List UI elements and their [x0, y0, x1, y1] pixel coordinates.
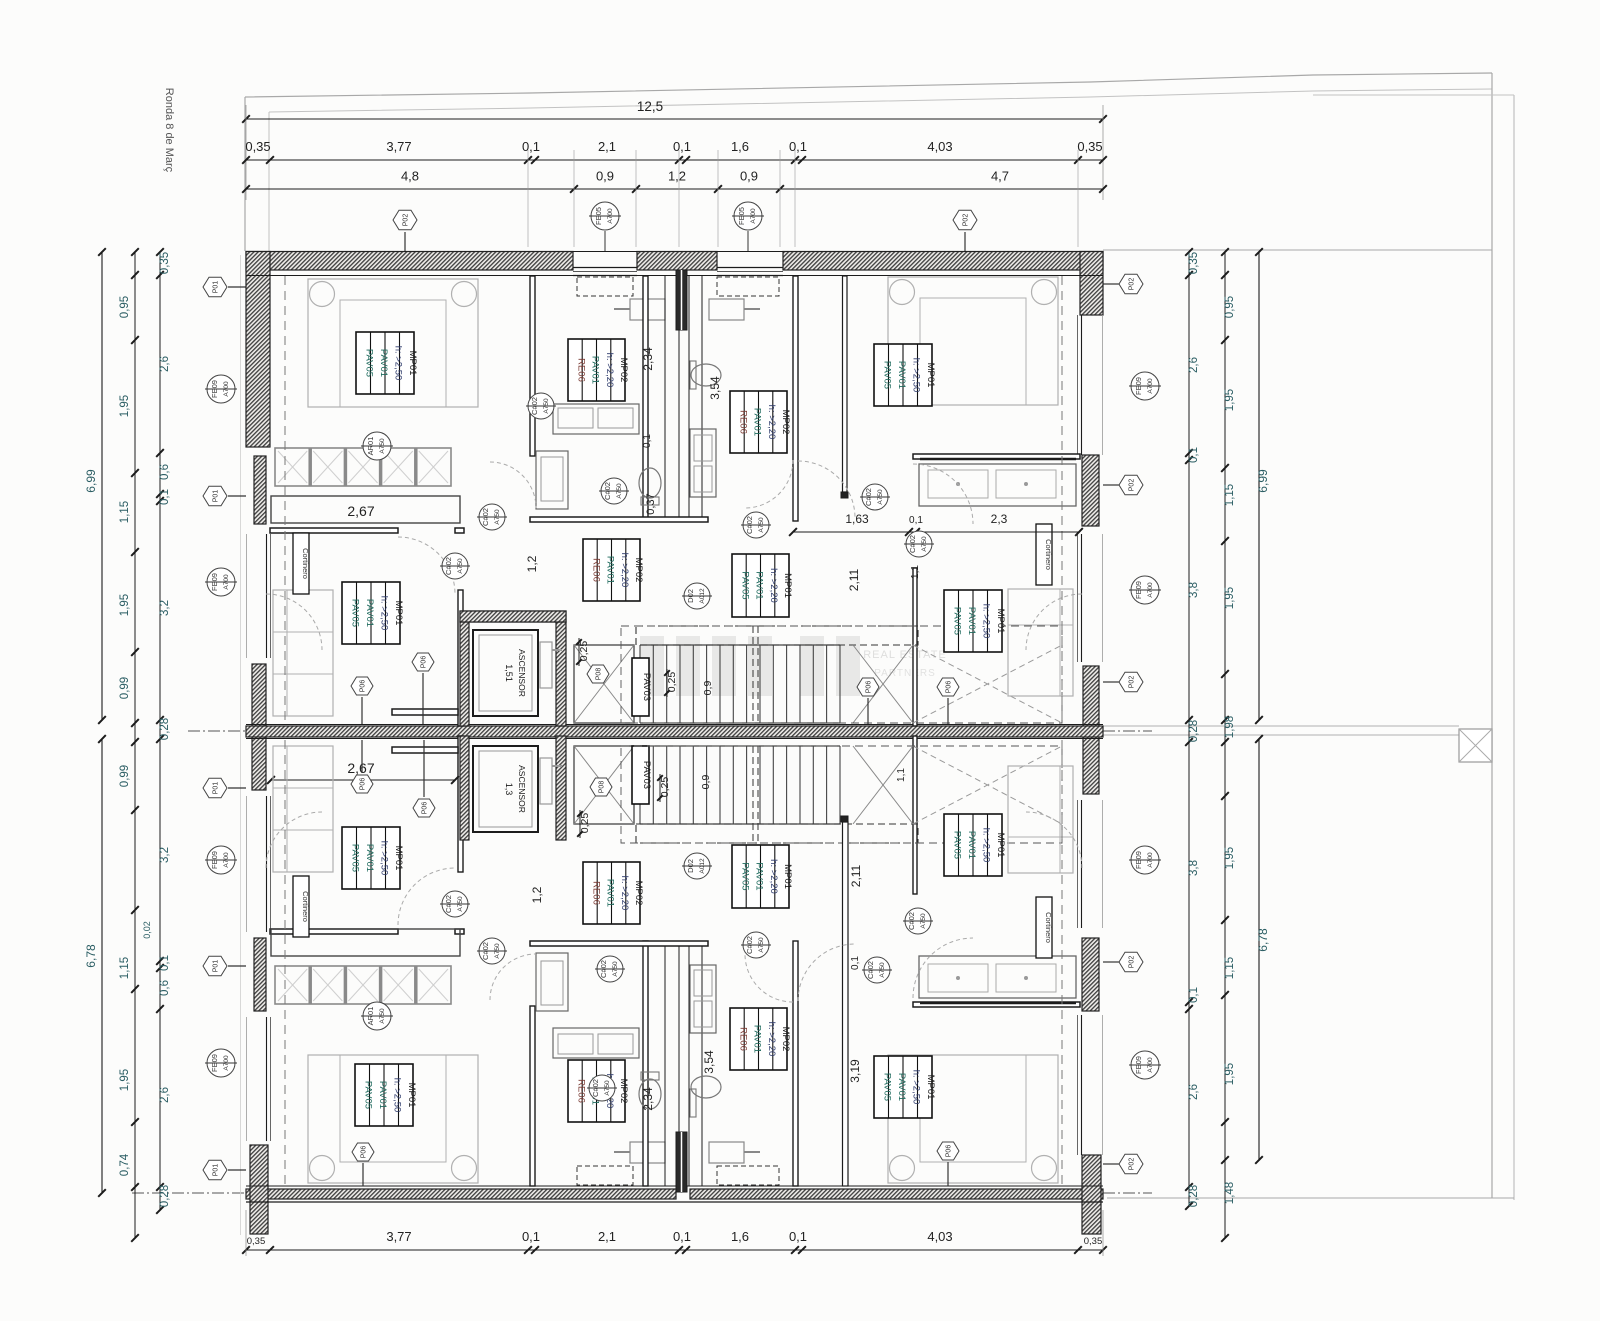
svg-text:MP01: MP01 — [782, 864, 793, 889]
svg-text:h: >2,50: h: >2,50 — [980, 828, 991, 863]
svg-text:P08: P08 — [599, 781, 606, 794]
svg-text:FE09: FE09 — [210, 851, 219, 869]
svg-text:PAV05: PAV05 — [362, 1081, 373, 1109]
svg-text:0,1: 0,1 — [522, 1229, 540, 1244]
svg-text:A700: A700 — [1147, 582, 1154, 598]
svg-text:PAV01: PAV01 — [896, 1073, 907, 1101]
svg-text:P02: P02 — [1129, 676, 1136, 689]
svg-text:MP02: MP02 — [633, 558, 644, 583]
svg-text:PAV05: PAV05 — [349, 844, 360, 872]
svg-text:A700: A700 — [1147, 852, 1154, 868]
svg-text:P02: P02 — [1129, 479, 1136, 492]
svg-text:3,54: 3,54 — [702, 1050, 716, 1074]
svg-text:2,11: 2,11 — [849, 864, 863, 887]
svg-text:0,95: 0,95 — [1224, 296, 1236, 318]
svg-text:A750: A750 — [494, 509, 501, 525]
svg-text:A750: A750 — [494, 943, 501, 959]
svg-text:FE09: FE09 — [210, 380, 219, 398]
svg-text:C#02: C#02 — [444, 557, 453, 575]
svg-text:P01: P01 — [213, 1164, 220, 1177]
svg-text:0,25: 0,25 — [578, 641, 590, 662]
svg-text:D02: D02 — [686, 589, 695, 603]
svg-text:P02: P02 — [1129, 1158, 1136, 1171]
svg-text:0,35: 0,35 — [1084, 1236, 1103, 1247]
svg-text:h: >2,20: h: >2,20 — [766, 405, 777, 440]
svg-text:2,6: 2,6 — [1188, 357, 1200, 373]
svg-text:PAV01: PAV01 — [754, 862, 765, 890]
svg-text:0,1: 0,1 — [673, 139, 691, 154]
svg-text:PARTNERS: PARTNERS — [874, 668, 936, 679]
svg-text:0,9: 0,9 — [596, 169, 614, 184]
svg-text:6,99: 6,99 — [1256, 469, 1270, 493]
svg-text:P02: P02 — [1129, 956, 1136, 969]
svg-text:0,35: 0,35 — [1188, 252, 1200, 274]
svg-text:C#02: C#02 — [530, 397, 539, 415]
svg-text:MP01: MP01 — [406, 1083, 417, 1108]
svg-text:AR01: AR01 — [366, 1007, 375, 1026]
svg-text:C#02: C#02 — [745, 936, 754, 954]
svg-text:P01: P01 — [213, 490, 220, 503]
svg-text:P06: P06 — [361, 1146, 368, 1159]
svg-text:P06: P06 — [360, 680, 367, 693]
svg-text:h: >2,20: h: >2,20 — [768, 568, 779, 603]
svg-text:ASCENSOR: ASCENSOR — [517, 649, 527, 697]
svg-text:3,2: 3,2 — [159, 847, 171, 863]
svg-text:h: >2,20: h: >2,20 — [766, 1022, 777, 1057]
svg-text:0,28: 0,28 — [159, 1185, 171, 1207]
svg-text:A750: A750 — [921, 536, 928, 552]
svg-text:PAV01: PAV01 — [377, 1081, 388, 1109]
svg-text:PAV01: PAV01 — [605, 879, 616, 907]
svg-text:0,1: 0,1 — [673, 1229, 691, 1244]
svg-text:1,2: 1,2 — [668, 169, 686, 184]
svg-text:A750: A750 — [616, 483, 623, 499]
svg-text:A750: A750 — [604, 1080, 611, 1096]
svg-text:3,19: 3,19 — [848, 1059, 862, 1083]
svg-text:0,1: 0,1 — [1188, 447, 1200, 463]
svg-text:0,37: 0,37 — [645, 493, 657, 514]
svg-text:3,77: 3,77 — [386, 139, 411, 154]
svg-text:A750: A750 — [758, 937, 765, 953]
svg-text:0,25: 0,25 — [579, 813, 591, 834]
svg-text:RE06: RE06 — [737, 1027, 748, 1051]
svg-text:PAV05: PAV05 — [349, 599, 360, 627]
svg-text:Cortinero: Cortinero — [1044, 912, 1053, 943]
svg-text:0,28: 0,28 — [1188, 720, 1200, 742]
svg-text:0,28: 0,28 — [1188, 1185, 1200, 1207]
svg-text:4,7: 4,7 — [991, 169, 1009, 184]
svg-text:2,1: 2,1 — [598, 139, 616, 154]
svg-text:C#02: C#02 — [444, 895, 453, 913]
svg-text:C#02: C#02 — [603, 482, 612, 500]
svg-text:MP02: MP02 — [633, 881, 644, 906]
svg-text:1,2: 1,2 — [530, 886, 544, 903]
svg-text:0,6: 0,6 — [159, 980, 171, 996]
svg-text:0,35: 0,35 — [1077, 139, 1102, 154]
svg-text:3,77: 3,77 — [386, 1229, 411, 1244]
svg-text:0,99: 0,99 — [119, 765, 131, 787]
svg-text:0,9: 0,9 — [700, 775, 712, 790]
svg-text:1,2: 1,2 — [525, 555, 539, 572]
svg-text:FE09: FE09 — [1134, 581, 1143, 599]
svg-text:h: >2,50: h: >2,50 — [910, 358, 921, 393]
svg-text:C#02: C#02 — [908, 535, 917, 553]
svg-text:FE09: FE09 — [210, 1054, 219, 1072]
svg-text:PAV01: PAV01 — [364, 844, 375, 872]
svg-text:P06: P06 — [946, 1145, 953, 1158]
svg-text:0,9: 0,9 — [740, 169, 758, 184]
svg-text:Cortinero: Cortinero — [301, 548, 310, 579]
svg-text:P01: P01 — [213, 782, 220, 795]
svg-text:PAV01: PAV01 — [752, 1025, 763, 1053]
svg-text:PAV05: PAV05 — [951, 831, 962, 859]
svg-text:h: >2,20: h: >2,20 — [619, 876, 630, 911]
svg-text:P02: P02 — [1129, 278, 1136, 291]
svg-text:4,03: 4,03 — [927, 139, 952, 154]
svg-text:PAV05: PAV05 — [739, 571, 750, 599]
svg-text:MP01: MP01 — [925, 1075, 936, 1100]
svg-text:MP02: MP02 — [618, 358, 629, 383]
svg-text:3,54: 3,54 — [708, 376, 722, 400]
svg-text:2,1: 2,1 — [598, 1229, 616, 1244]
svg-text:C#02: C#02 — [907, 912, 916, 930]
svg-text:0,1: 0,1 — [159, 955, 171, 971]
svg-text:AR01: AR01 — [366, 437, 375, 456]
svg-text:h: >2,50: h: >2,50 — [392, 346, 403, 381]
svg-text:P06: P06 — [866, 681, 873, 694]
svg-text:2,6: 2,6 — [159, 1087, 171, 1103]
svg-text:P01: P01 — [213, 960, 220, 973]
svg-text:2,3: 2,3 — [991, 512, 1008, 526]
svg-text:6,78: 6,78 — [84, 944, 98, 968]
svg-text:1,51: 1,51 — [504, 664, 514, 682]
svg-text:A750: A750 — [877, 489, 884, 505]
svg-text:C#02: C#02 — [864, 488, 873, 506]
svg-text:PAV01: PAV01 — [590, 356, 601, 384]
svg-text:2,11: 2,11 — [847, 568, 861, 591]
svg-text:PAV01: PAV01 — [364, 599, 375, 627]
svg-text:Ronda 8 de Març: Ronda 8 de Març — [163, 88, 175, 173]
svg-text:1,3: 1,3 — [504, 783, 514, 796]
svg-text:0,35: 0,35 — [159, 252, 171, 274]
svg-text:FE09: FE09 — [1134, 851, 1143, 869]
svg-text:0,02: 0,02 — [142, 921, 152, 939]
svg-text:0,1: 0,1 — [789, 139, 807, 154]
svg-text:FE05: FE05 — [737, 207, 746, 225]
svg-text:PAV01: PAV01 — [754, 571, 765, 599]
svg-text:PAV01: PAV01 — [605, 556, 616, 584]
svg-text:h: >2,20: h: >2,20 — [619, 553, 630, 588]
svg-text:Cortinero: Cortinero — [301, 891, 310, 922]
svg-text:MP01: MP01 — [995, 609, 1006, 634]
svg-text:P06: P06 — [421, 656, 428, 669]
svg-text:MP01: MP01 — [393, 601, 404, 626]
svg-text:1,95: 1,95 — [1224, 587, 1236, 609]
svg-text:PAV01: PAV01 — [966, 831, 977, 859]
svg-text:0,25: 0,25 — [666, 672, 678, 693]
svg-text:P08: P08 — [596, 668, 603, 681]
svg-text:h: >2,50: h: >2,50 — [910, 1070, 921, 1105]
svg-text:A750: A750 — [612, 961, 619, 977]
svg-text:h: >2,50: h: >2,50 — [378, 596, 389, 631]
svg-text:A700: A700 — [750, 208, 757, 224]
svg-text:1,15: 1,15 — [1224, 484, 1236, 506]
svg-text:1,1: 1,1 — [910, 565, 921, 579]
svg-text:FE05: FE05 — [594, 207, 603, 225]
svg-text:A750: A750 — [379, 438, 386, 454]
svg-text:1,6: 1,6 — [731, 1229, 749, 1244]
svg-text:4,8: 4,8 — [401, 169, 419, 184]
svg-text:RE06: RE06 — [590, 558, 601, 582]
svg-text:h: >2,20: h: >2,20 — [604, 353, 615, 388]
svg-text:P06: P06 — [946, 681, 953, 694]
svg-text:RE06: RE06 — [737, 410, 748, 434]
svg-text:PAV03: PAV03 — [641, 761, 652, 789]
svg-text:1,95: 1,95 — [1224, 847, 1236, 869]
svg-text:1,48: 1,48 — [1224, 1182, 1236, 1204]
svg-text:PAV01: PAV01 — [966, 607, 977, 635]
svg-text:A750: A750 — [920, 913, 927, 929]
svg-text:0,99: 0,99 — [119, 677, 131, 699]
svg-text:A012: A012 — [699, 588, 706, 604]
svg-text:1,63: 1,63 — [845, 512, 869, 526]
svg-text:A750: A750 — [379, 1008, 386, 1024]
svg-text:1,15: 1,15 — [119, 957, 131, 979]
svg-text:PAV01: PAV01 — [752, 408, 763, 436]
svg-text:Cortinero: Cortinero — [1044, 539, 1053, 570]
svg-text:A750: A750 — [457, 896, 464, 912]
svg-text:A700: A700 — [1147, 378, 1154, 394]
svg-text:0,1: 0,1 — [789, 1229, 807, 1244]
svg-text:P06: P06 — [422, 802, 429, 815]
svg-text:MP01: MP01 — [407, 351, 418, 376]
svg-text:3,8: 3,8 — [1188, 582, 1200, 598]
svg-text:A750: A750 — [457, 558, 464, 574]
svg-text:1,95: 1,95 — [119, 1069, 131, 1091]
svg-text:1,95: 1,95 — [119, 395, 131, 417]
svg-text:h: >2,20: h: >2,20 — [768, 859, 779, 894]
svg-text:A700: A700 — [223, 1055, 230, 1071]
svg-text:0,28: 0,28 — [159, 718, 171, 740]
svg-text:2,6: 2,6 — [1188, 1084, 1200, 1100]
svg-text:C#02: C#02 — [745, 516, 754, 534]
svg-text:MP01: MP01 — [782, 573, 793, 598]
svg-text:A700: A700 — [607, 208, 614, 224]
svg-text:0,1: 0,1 — [1188, 987, 1200, 1003]
svg-text:RE06: RE06 — [575, 1079, 586, 1103]
svg-text:A012: A012 — [699, 858, 706, 874]
svg-text:2,34: 2,34 — [641, 347, 655, 371]
svg-text:MP02: MP02 — [618, 1079, 629, 1104]
svg-text:h: >2,50: h: >2,50 — [378, 841, 389, 876]
svg-text:A700: A700 — [223, 852, 230, 868]
svg-text:C#02: C#02 — [591, 1079, 600, 1097]
svg-text:A700: A700 — [223, 574, 230, 590]
svg-text:MP01: MP01 — [925, 363, 936, 388]
svg-text:PAV05: PAV05 — [881, 361, 892, 389]
svg-text:RE06: RE06 — [590, 881, 601, 905]
svg-text:2,67: 2,67 — [347, 503, 374, 519]
svg-text:6,78: 6,78 — [1256, 928, 1270, 952]
svg-text:PAV05: PAV05 — [739, 862, 750, 890]
svg-text:0,74: 0,74 — [119, 1153, 131, 1176]
svg-text:0,35: 0,35 — [245, 139, 270, 154]
svg-text:MP01: MP01 — [995, 833, 1006, 858]
svg-text:1,15: 1,15 — [1224, 957, 1236, 979]
svg-text:2,6: 2,6 — [159, 356, 171, 372]
svg-text:3,8: 3,8 — [1188, 860, 1200, 876]
svg-text:1,95: 1,95 — [119, 594, 131, 616]
svg-text:0,1: 0,1 — [909, 515, 923, 526]
svg-text:1,1: 1,1 — [896, 768, 907, 782]
svg-text:1,95: 1,95 — [1224, 1063, 1236, 1085]
svg-text:0,1: 0,1 — [642, 434, 653, 448]
svg-text:P01: P01 — [213, 281, 220, 294]
svg-text:PAV01: PAV01 — [378, 349, 389, 377]
svg-text:P02: P02 — [403, 214, 410, 227]
svg-text:MP02: MP02 — [780, 410, 791, 435]
svg-text:MP01: MP01 — [393, 846, 404, 871]
svg-text:PAV03: PAV03 — [641, 673, 652, 701]
svg-text:C#02: C#02 — [481, 508, 490, 526]
svg-text:FE09: FE09 — [210, 573, 219, 591]
svg-text:0,6: 0,6 — [159, 464, 171, 480]
svg-text:A750: A750 — [879, 962, 886, 978]
svg-text:MP02: MP02 — [780, 1027, 791, 1052]
svg-text:C#02: C#02 — [599, 960, 608, 978]
svg-text:0,35: 0,35 — [247, 1236, 266, 1247]
svg-text:2,34: 2,34 — [641, 1087, 655, 1111]
svg-text:4,03: 4,03 — [927, 1229, 952, 1244]
svg-text:2,67: 2,67 — [347, 760, 374, 776]
svg-text:FE09: FE09 — [1134, 1056, 1143, 1074]
svg-text:0,9: 0,9 — [702, 681, 714, 696]
svg-text:h: >2,50: h: >2,50 — [980, 604, 991, 639]
svg-text:C#02: C#02 — [481, 942, 490, 960]
svg-text:0,25: 0,25 — [659, 777, 671, 798]
svg-text:A750: A750 — [543, 398, 550, 414]
svg-text:PAV05: PAV05 — [951, 607, 962, 635]
svg-text:PAV05: PAV05 — [881, 1073, 892, 1101]
svg-text:1,95: 1,95 — [1224, 389, 1236, 411]
svg-text:PAV01: PAV01 — [896, 361, 907, 389]
svg-text:P06: P06 — [360, 778, 367, 791]
svg-text:PAV05: PAV05 — [363, 349, 374, 377]
svg-text:P02: P02 — [963, 214, 970, 227]
svg-text:ASCENSOR: ASCENSOR — [517, 765, 527, 813]
svg-text:1,98: 1,98 — [1224, 716, 1236, 738]
svg-text:0,1: 0,1 — [522, 139, 540, 154]
svg-text:h: >2,50: h: >2,50 — [391, 1078, 402, 1113]
svg-text:D02: D02 — [686, 859, 695, 873]
svg-text:C#02: C#02 — [866, 961, 875, 979]
svg-text:3,2: 3,2 — [159, 600, 171, 616]
svg-text:12,5: 12,5 — [637, 99, 663, 114]
svg-text:RE06: RE06 — [575, 358, 586, 382]
svg-text:0,1: 0,1 — [159, 489, 171, 505]
svg-text:0,95: 0,95 — [119, 296, 131, 318]
svg-text:A700: A700 — [1147, 1057, 1154, 1073]
svg-text:A700: A700 — [223, 381, 230, 397]
svg-text:A750: A750 — [758, 517, 765, 533]
svg-text:6,99: 6,99 — [84, 469, 98, 493]
svg-text:1,15: 1,15 — [119, 501, 131, 523]
svg-text:0,1: 0,1 — [850, 956, 861, 970]
svg-text:1,6: 1,6 — [731, 139, 749, 154]
svg-text:FE09: FE09 — [1134, 377, 1143, 395]
